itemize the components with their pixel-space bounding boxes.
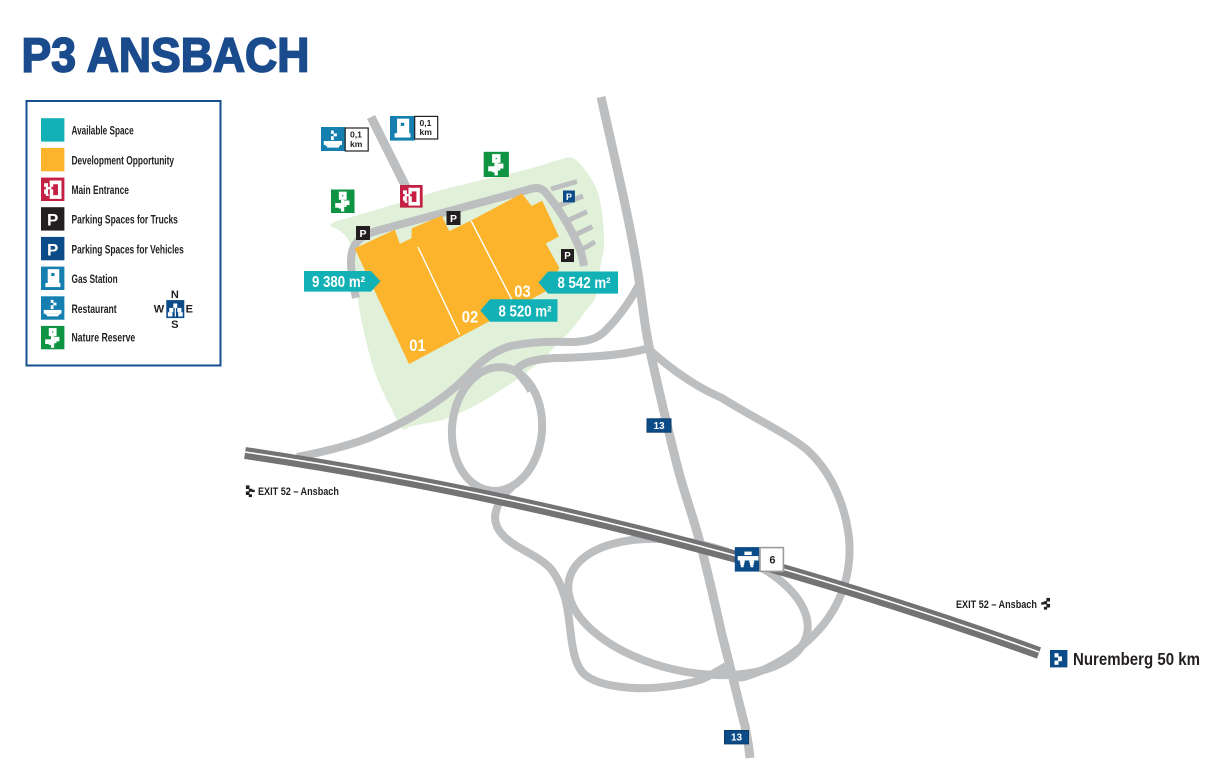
svg-text:km: km xyxy=(420,127,433,137)
svg-text:9 380 m²: 9 380 m² xyxy=(312,274,365,291)
svg-text:Nature Reserve: Nature Reserve xyxy=(72,332,136,345)
svg-text:EXIT 52 – Ansbach: EXIT 52 – Ansbach xyxy=(956,599,1037,611)
svg-text:Parking Spaces for Vehicles: Parking Spaces for Vehicles xyxy=(72,244,184,257)
svg-text:6: 6 xyxy=(769,555,775,567)
svg-text:km: km xyxy=(350,139,363,149)
svg-text:Main Entrance: Main Entrance xyxy=(72,185,130,198)
svg-text:Restaurant: Restaurant xyxy=(72,304,118,317)
svg-text:P: P xyxy=(47,240,58,259)
svg-text:13: 13 xyxy=(731,733,743,744)
svg-text:Development Opportunity: Development Opportunity xyxy=(72,155,175,168)
svg-text:8 520 m²: 8 520 m² xyxy=(498,303,551,320)
svg-text:02: 02 xyxy=(462,309,479,327)
svg-text:Gas Station: Gas Station xyxy=(72,274,118,287)
svg-text:Available Space: Available Space xyxy=(72,125,134,138)
svg-text:03: 03 xyxy=(514,283,531,301)
svg-text:P: P xyxy=(47,211,58,230)
svg-text:Nuremberg 50 km: Nuremberg 50 km xyxy=(1073,649,1200,670)
svg-text:P3 ANSBACH: P3 ANSBACH xyxy=(22,28,310,82)
svg-text:E: E xyxy=(186,304,193,316)
svg-text:13: 13 xyxy=(653,421,665,432)
svg-text:01: 01 xyxy=(409,337,426,355)
svg-text:W: W xyxy=(154,304,165,316)
svg-text:N: N xyxy=(171,289,179,301)
svg-text:S: S xyxy=(171,319,178,331)
svg-text:Parking Spaces for Trucks: Parking Spaces for Trucks xyxy=(72,214,179,227)
svg-text:EXIT 52 – Ansbach: EXIT 52 – Ansbach xyxy=(258,486,339,498)
svg-text:8 542 m²: 8 542 m² xyxy=(557,275,610,292)
